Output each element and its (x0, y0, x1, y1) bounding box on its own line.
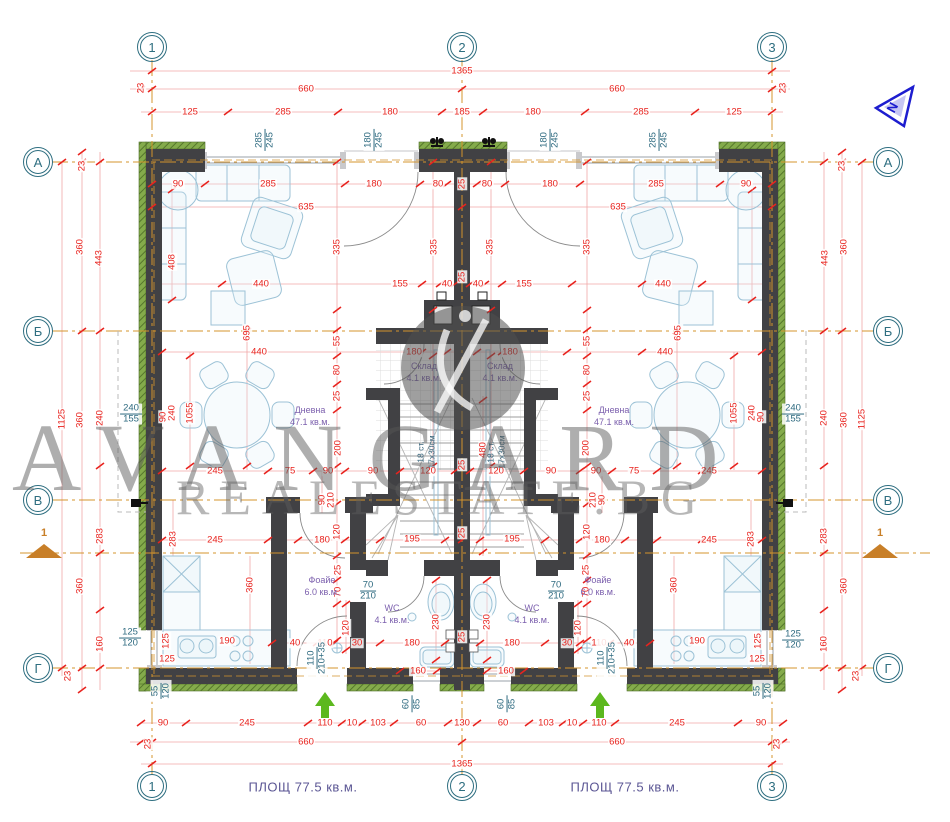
side-table (158, 170, 198, 210)
section-marker-icon (862, 544, 898, 558)
side-table (726, 170, 766, 210)
sofa (634, 165, 728, 201)
entrance-arrow-icon (315, 692, 335, 718)
dining-table (654, 382, 720, 448)
north-arrow-icon: N (876, 87, 913, 126)
dining-table (204, 382, 270, 448)
coffee-table (679, 291, 713, 325)
stove-burner (230, 636, 240, 646)
section-marker-icon (26, 544, 62, 558)
floor-plan-canvas: N 13652366066023125285180185180285125902… (0, 0, 950, 822)
coffee-table (211, 291, 245, 325)
door-swing (344, 172, 418, 246)
sofa (196, 165, 290, 201)
floor-plan-drawing: N (0, 0, 950, 822)
toilet-symbol (408, 613, 416, 621)
stove-burner (671, 636, 681, 646)
toilet-symbol (508, 613, 516, 621)
entrance-arrow-icon (590, 692, 610, 718)
storage-tile-floor (376, 344, 454, 470)
storage-tile-floor (470, 344, 548, 470)
